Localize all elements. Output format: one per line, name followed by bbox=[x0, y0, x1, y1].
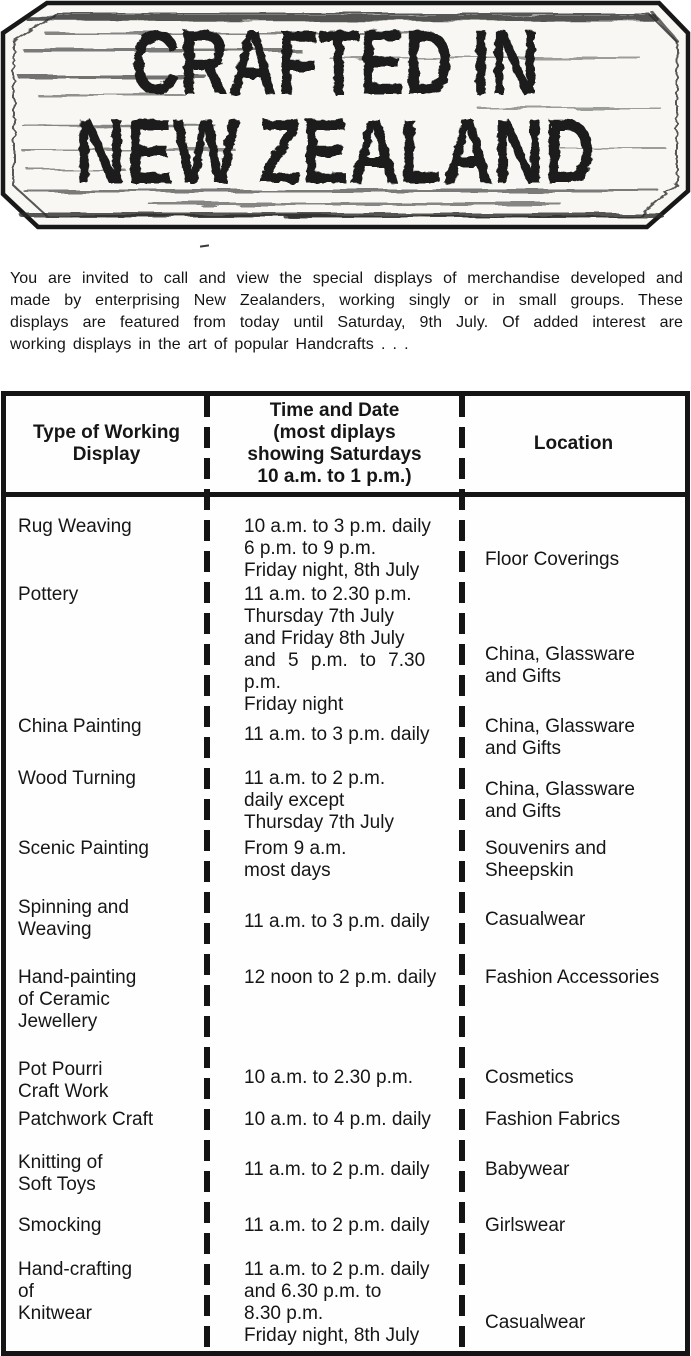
type-line: China Painting bbox=[18, 716, 207, 738]
time-line: Friday night, 8th July bbox=[244, 560, 462, 582]
sign-line-2: NEW ZEALAND bbox=[75, 101, 595, 203]
location-line: China, Glassware bbox=[485, 644, 685, 666]
table-row: Patchwork Craft10 a.m. to 4 p.m. dailyFa… bbox=[6, 1109, 685, 1152]
location-line: Fashion Fabrics bbox=[485, 1109, 685, 1131]
location-line: and Gifts bbox=[485, 801, 685, 823]
cell-type: Patchwork Craft bbox=[6, 1109, 207, 1152]
type-line: Craft Work bbox=[18, 1081, 207, 1103]
time-line: 11 a.m. to 2 p.m. bbox=[244, 768, 462, 790]
location-line: Casualwear bbox=[485, 1312, 685, 1334]
time-line: 10 a.m. to 3 p.m. daily bbox=[244, 516, 462, 538]
cell-type: Pot PourriCraft Work bbox=[6, 1059, 207, 1109]
type-line: Wood Turning bbox=[18, 768, 207, 790]
cell-time: 10 a.m. to 4 p.m. daily bbox=[207, 1109, 462, 1152]
cell-type: China Painting bbox=[6, 716, 207, 768]
cell-time: 11 a.m. to 3 p.m. daily bbox=[207, 716, 462, 768]
location-line: Cosmetics bbox=[485, 1067, 685, 1089]
time-line: Friday night, 8th July bbox=[244, 1325, 462, 1347]
cell-time: 11 a.m. to 2 p.m. daily bbox=[207, 1152, 462, 1215]
type-line: Hand-painting bbox=[18, 967, 207, 989]
time-line: Thursday 7th July bbox=[244, 812, 462, 834]
time-line: 11 a.m. to 3 p.m. daily bbox=[244, 911, 462, 933]
header-line: (most diplays bbox=[215, 422, 454, 444]
cell-type: Hand-paintingof CeramicJewellery bbox=[6, 967, 207, 1059]
time-line: 11 a.m. to 2 p.m. daily bbox=[244, 1215, 462, 1237]
type-line: Weaving bbox=[18, 919, 207, 941]
type-line: Patchwork Craft bbox=[18, 1109, 207, 1131]
column-divider-2 bbox=[459, 396, 465, 1351]
cell-type: Scenic Painting bbox=[6, 838, 207, 897]
time-line: p.m. bbox=[244, 672, 462, 694]
table-row: Hand-paintingof CeramicJewellery12 noon … bbox=[6, 967, 685, 1059]
cell-type: Pottery bbox=[6, 584, 207, 716]
type-line: Spinning and bbox=[18, 897, 207, 919]
cell-location: Casualwear bbox=[462, 1259, 685, 1351]
type-line: Rug Weaving bbox=[18, 516, 207, 538]
table-row: Rug Weaving10 a.m. to 3 p.m. daily6 p.m.… bbox=[6, 497, 685, 584]
sign-line-1: CRAFTED IN bbox=[131, 12, 539, 114]
type-line: of bbox=[18, 1281, 207, 1303]
time-line: 12 noon to 2 p.m. daily bbox=[244, 967, 462, 989]
cell-location: Casualwear bbox=[462, 897, 685, 967]
location-line: Sheepskin bbox=[485, 860, 685, 882]
type-line: Jewellery bbox=[18, 1011, 207, 1033]
cell-type: Spinning andWeaving bbox=[6, 897, 207, 967]
type-line: Knitwear bbox=[18, 1303, 207, 1325]
location-line: and Gifts bbox=[485, 666, 685, 688]
cell-time: 11 a.m. to 2 p.m. daily bbox=[207, 1215, 462, 1259]
cell-location: China, Glasswareand Gifts bbox=[462, 584, 685, 716]
cell-location: Babywear bbox=[462, 1152, 685, 1215]
header-line: Display bbox=[14, 444, 199, 466]
location-line: Floor Coverings bbox=[485, 549, 685, 571]
cell-time: 11 a.m. to 2.30 p.m.Thursday 7th Julyand… bbox=[207, 584, 462, 716]
location-line: Casualwear bbox=[485, 909, 685, 931]
table-row: Spinning andWeaving11 a.m. to 3 p.m. dai… bbox=[6, 897, 685, 967]
header-line: 10 a.m. to 1 p.m.) bbox=[215, 466, 454, 488]
cell-location: Cosmetics bbox=[462, 1059, 685, 1109]
type-line: of Ceramic bbox=[18, 989, 207, 1011]
cell-time: 12 noon to 2 p.m. daily bbox=[207, 967, 462, 1059]
cell-time: 11 a.m. to 2 p.m.daily exceptThursday 7t… bbox=[207, 768, 462, 838]
cell-location: China, Glasswareand Gifts bbox=[462, 716, 685, 768]
cell-location: Girlswear bbox=[462, 1215, 685, 1259]
scan-artifact-mark bbox=[200, 244, 209, 247]
cell-time: 11 a.m. to 2 p.m. dailyand 6.30 p.m. to8… bbox=[207, 1259, 462, 1351]
time-line: 11 a.m. to 3 p.m. daily bbox=[244, 724, 462, 746]
time-line: From 9 a.m. bbox=[244, 838, 462, 860]
cell-location: Souvenirs andSheepskin bbox=[462, 838, 685, 897]
time-line: 6 p.m. to 9 p.m. bbox=[244, 538, 462, 560]
table-row: Knitting ofSoft Toys11 a.m. to 2 p.m. da… bbox=[6, 1152, 685, 1215]
header-line: Time and Date bbox=[215, 400, 454, 422]
type-line: Soft Toys bbox=[18, 1174, 207, 1196]
intro-line: working displays in the art of popular H… bbox=[10, 334, 683, 356]
location-line: Fashion Accessories bbox=[485, 967, 685, 989]
displays-table: Type of Working Display Time and Date (m… bbox=[1, 391, 690, 1356]
column-header-type: Type of Working Display bbox=[6, 396, 207, 492]
table-row: China Painting11 a.m. to 3 p.m. dailyChi… bbox=[6, 716, 685, 768]
crafted-in-new-zealand-sign: CRAFTED IN NEW ZEALAND bbox=[0, 0, 691, 232]
type-line: Hand-crafting bbox=[18, 1259, 207, 1281]
cell-time: 10 a.m. to 3 p.m. daily6 p.m. to 9 p.m.F… bbox=[207, 516, 462, 584]
cell-location: Floor Coverings bbox=[462, 516, 685, 584]
header-line: Type of Working bbox=[14, 422, 199, 444]
table-row: Hand-craftingofKnitwear11 a.m. to 2 p.m.… bbox=[6, 1259, 685, 1351]
time-line: Friday night bbox=[244, 694, 462, 716]
time-line: 11 a.m. to 2 p.m. daily bbox=[244, 1259, 462, 1281]
location-line: and Gifts bbox=[485, 738, 685, 760]
type-line: Scenic Painting bbox=[18, 838, 207, 860]
time-line: 11 a.m. to 2.30 p.m. bbox=[244, 584, 462, 606]
time-line: and 6.30 p.m. to bbox=[244, 1281, 462, 1303]
time-line: most days bbox=[244, 860, 462, 882]
intro-line: made by enterprising New Zealanders, wor… bbox=[10, 290, 683, 312]
time-line: 11 a.m. to 2 p.m. daily bbox=[244, 1159, 462, 1181]
intro-paragraph: You are invited to call and view the spe… bbox=[10, 268, 683, 356]
location-line: Babywear bbox=[485, 1159, 685, 1181]
cell-type: Hand-craftingofKnitwear bbox=[6, 1259, 207, 1351]
location-line: China, Glassware bbox=[485, 716, 685, 738]
table-body: Rug Weaving10 a.m. to 3 p.m. daily6 p.m.… bbox=[6, 497, 685, 1351]
type-line: Pottery bbox=[18, 584, 207, 606]
column-divider-1 bbox=[204, 396, 210, 1351]
cell-type: Knitting ofSoft Toys bbox=[6, 1152, 207, 1215]
table-row: Pot PourriCraft Work10 a.m. to 2.30 p.m.… bbox=[6, 1059, 685, 1109]
cell-location: China, Glasswareand Gifts bbox=[462, 768, 685, 838]
cell-time: 11 a.m. to 3 p.m. daily bbox=[207, 897, 462, 967]
time-line: Thursday 7th July bbox=[244, 606, 462, 628]
type-line: Knitting of bbox=[18, 1152, 207, 1174]
cell-type: Rug Weaving bbox=[6, 516, 207, 584]
type-line: Pot Pourri bbox=[18, 1059, 207, 1081]
column-header-location: Location bbox=[462, 396, 685, 492]
time-line: and 5 p.m. to 7.30 bbox=[244, 650, 462, 672]
cell-time: From 9 a.m.most days bbox=[207, 838, 462, 897]
time-line: daily except bbox=[244, 790, 462, 812]
header-line: showing Saturdays bbox=[215, 444, 454, 466]
column-header-time: Time and Date (most diplays showing Satu… bbox=[207, 396, 462, 492]
time-line: and Friday 8th July bbox=[244, 628, 462, 650]
intro-line: displays are featured from today until S… bbox=[10, 312, 683, 334]
header-line: Location bbox=[470, 433, 677, 455]
cell-location: Fashion Fabrics bbox=[462, 1109, 685, 1152]
cell-time: 10 a.m. to 2.30 p.m. bbox=[207, 1059, 462, 1109]
location-line: Souvenirs and bbox=[485, 838, 685, 860]
type-line: Smocking bbox=[18, 1215, 207, 1237]
cell-type: Wood Turning bbox=[6, 768, 207, 838]
table-row: Scenic PaintingFrom 9 a.m.most daysSouve… bbox=[6, 838, 685, 897]
time-line: 8.30 p.m. bbox=[244, 1303, 462, 1325]
table-row: Smocking11 a.m. to 2 p.m. dailyGirlswear bbox=[6, 1215, 685, 1259]
time-line: 10 a.m. to 4 p.m. daily bbox=[244, 1109, 462, 1131]
cell-location: Fashion Accessories bbox=[462, 967, 685, 1059]
location-line: China, Glassware bbox=[485, 779, 685, 801]
intro-line: You are invited to call and view the spe… bbox=[10, 268, 683, 290]
time-line: 10 a.m. to 2.30 p.m. bbox=[244, 1067, 462, 1089]
location-line: Girlswear bbox=[485, 1215, 685, 1237]
table-row: Wood Turning11 a.m. to 2 p.m.daily excep… bbox=[6, 768, 685, 838]
table-header-row: Type of Working Display Time and Date (m… bbox=[6, 396, 685, 497]
cell-type: Smocking bbox=[6, 1215, 207, 1259]
table-row: Pottery11 a.m. to 2.30 p.m.Thursday 7th … bbox=[6, 584, 685, 716]
